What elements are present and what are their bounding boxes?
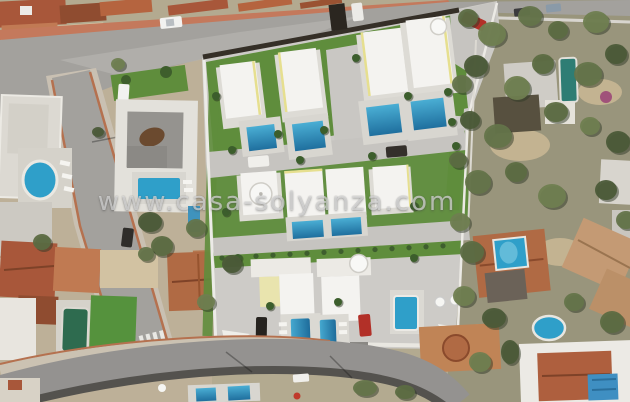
tree [548,21,568,39]
patio-umbrella [435,297,445,307]
pool [23,161,57,199]
pool [533,316,565,340]
palm-tree [334,298,342,306]
terracotta-roof [59,2,106,23]
patio-umbrella [158,384,166,392]
tree [482,308,506,328]
pool [366,103,402,136]
palm-tree [404,92,412,100]
shrub [372,247,377,252]
palm-tree [212,92,220,100]
palm-tree [368,152,376,160]
tree [469,352,491,372]
shrub [270,253,275,258]
pool [228,385,251,400]
tree [460,111,480,129]
villa-roof [372,165,411,209]
palm-tree [160,66,172,78]
tree [538,184,566,208]
tree [484,124,512,148]
car [546,3,562,13]
conical-roof [443,335,469,361]
tree [197,294,215,310]
shrub [406,245,411,250]
white-house [0,298,36,360]
shrub [423,244,428,249]
sun-lounger [184,188,193,192]
shrub [440,243,445,248]
tree [505,162,527,182]
tree [458,9,478,27]
tree [478,22,506,46]
tree [138,247,154,261]
tree [532,54,554,74]
pool [410,98,446,131]
tree [138,212,162,232]
tree [544,102,568,122]
palm-tree [222,208,230,216]
dark-car [256,317,267,338]
shrub [321,250,326,255]
white-car [248,155,270,168]
sun-lounger [279,330,287,334]
sun-lounger [339,330,347,334]
sun-lounger [183,180,192,184]
palm-tree [121,75,131,85]
shrub [287,252,292,257]
palm-tree [452,142,460,150]
palm-tree [410,202,418,210]
green-pool [61,308,89,353]
tree [92,127,104,137]
villa-roof [279,273,315,320]
covered-pool [559,58,578,103]
villa [321,167,368,239]
terracotta-roof [8,380,22,390]
tree [222,255,242,273]
tree [449,152,467,168]
white-car [293,373,310,382]
dark-car [121,227,134,247]
aerial-scene [0,0,630,402]
sun-lounger [279,322,287,326]
patio-umbrella [349,254,368,273]
palm-tree [228,146,236,154]
pool [138,178,180,199]
tree [574,62,602,86]
red-car [358,314,372,337]
palm-tree [266,302,274,310]
garage [328,3,347,31]
tree [186,219,206,237]
palm-tree [444,88,452,96]
tree [453,286,475,306]
red-awning [294,393,301,400]
tree [518,6,542,26]
pool [394,296,418,330]
shrub [338,249,343,254]
tree [583,11,609,33]
palm-tree [320,126,328,134]
villa [368,165,413,216]
terracotta-roof [53,247,101,293]
shrub [304,251,309,256]
dark-roof [485,269,528,303]
palm-tree [352,54,360,62]
sun-lounger [339,322,347,326]
tree [33,234,51,250]
tree [450,213,470,231]
palm-tree [274,130,282,138]
pool [292,220,324,239]
tree [501,340,519,364]
tree [111,58,125,70]
pool [331,217,362,236]
tree [564,293,584,311]
shrub [253,254,258,259]
villa [282,169,329,242]
villa-roof [284,169,325,222]
tree [464,55,488,77]
palm-tree [448,118,456,126]
tree [504,76,530,100]
tree [606,131,630,153]
pool [246,124,277,151]
tree [595,180,617,200]
dark-car [386,145,408,158]
pool [196,387,217,401]
tree [605,44,627,64]
villa [236,171,283,222]
aerial-photo: www.casa-solyanza.com [0,0,630,402]
bougainvillea [600,91,612,103]
shrub [389,246,394,251]
tree [452,75,472,93]
white-car [351,2,364,21]
tree [465,170,491,194]
villa-roof [325,167,366,220]
pool [588,373,619,400]
tree [460,241,484,263]
pool [292,121,326,152]
shrub [355,248,360,253]
tree [580,117,600,135]
tree [600,311,624,333]
palm-tree [410,254,418,262]
palm-tree [296,156,304,164]
tree [353,380,377,396]
development [202,1,500,361]
tree [395,385,415,399]
